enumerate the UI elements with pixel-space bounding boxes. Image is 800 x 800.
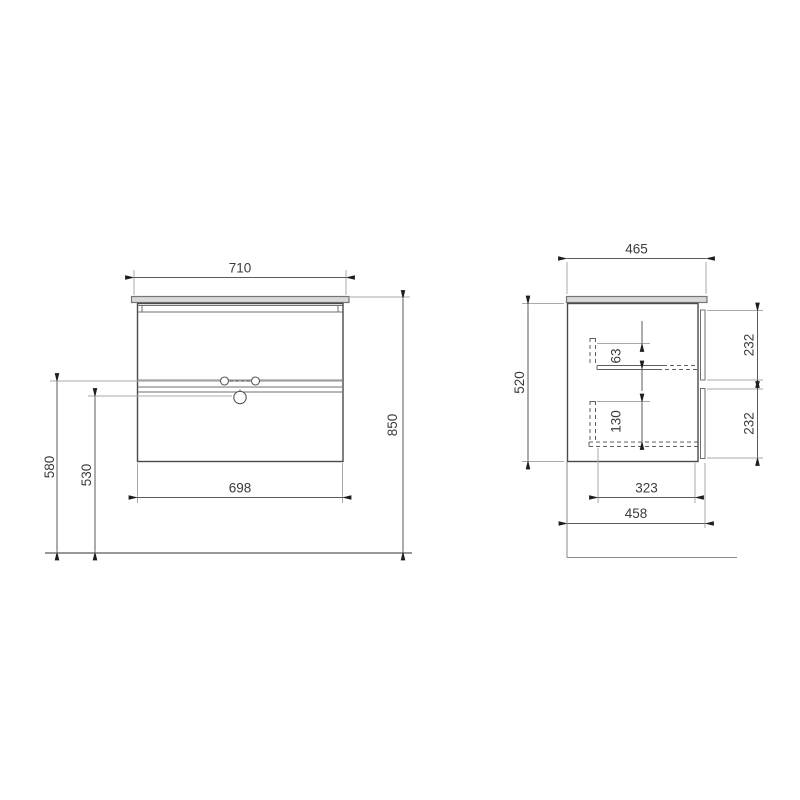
upper-drawer-hidden <box>590 338 698 370</box>
front-top-rail <box>138 306 343 313</box>
dim-upper-drawer-front-height: 232 <box>707 311 763 381</box>
dim-front-top-width: 710 <box>134 261 346 296</box>
front-view: 710 <box>42 261 412 554</box>
dim-label-130: 130 <box>609 410 624 433</box>
dim-side-top-depth: 465 <box>567 242 706 295</box>
dim-label-323: 323 <box>635 481 658 496</box>
side-carcass <box>568 304 699 462</box>
dim-lower-drawer-front-height: 232 <box>707 389 763 458</box>
dim-label-530: 530 <box>79 464 94 487</box>
front-carcass <box>138 304 344 462</box>
lower-drawer-front-edge <box>701 389 706 459</box>
dim-tap-holes-height: 580 <box>42 382 57 552</box>
drain-hole <box>234 391 246 403</box>
dim-carcass-depth: 458 <box>568 463 706 528</box>
dim-label-232-upper: 232 <box>742 334 757 357</box>
drawing-page: 710 <box>0 0 800 800</box>
dim-label-580: 580 <box>42 456 57 479</box>
lower-drawer-hidden <box>589 401 698 447</box>
dim-label-710: 710 <box>229 261 252 276</box>
dim-label-850: 850 <box>385 414 400 437</box>
dim-upper-drawer-inner: 63 <box>597 321 650 391</box>
technical-drawing: 710 <box>0 0 800 800</box>
dim-front-cabinet-width: 698 <box>138 463 343 503</box>
dim-label-520: 520 <box>512 371 527 394</box>
side-reference-line <box>567 462 737 558</box>
dim-drawer-inner-depth: 323 <box>598 448 695 503</box>
dim-label-458: 458 <box>625 506 648 521</box>
dim-carcass-height: 520 <box>512 304 564 462</box>
tap-hole-left <box>221 377 229 385</box>
dim-overall-height: 850 <box>349 297 410 552</box>
dim-label-465: 465 <box>625 242 648 257</box>
front-countertop <box>132 297 350 303</box>
side-countertop <box>567 297 708 303</box>
dim-label-232-lower: 232 <box>742 412 757 435</box>
side-view: 465 520 <box>512 242 763 558</box>
dim-label-698: 698 <box>229 481 252 496</box>
dim-drain-hole-height: 530 <box>79 397 95 552</box>
dim-lower-drawer-inner: 130 <box>597 402 650 442</box>
tap-hole-right <box>252 377 260 385</box>
dim-label-63: 63 <box>609 348 624 363</box>
upper-drawer-front-edge <box>701 310 706 380</box>
